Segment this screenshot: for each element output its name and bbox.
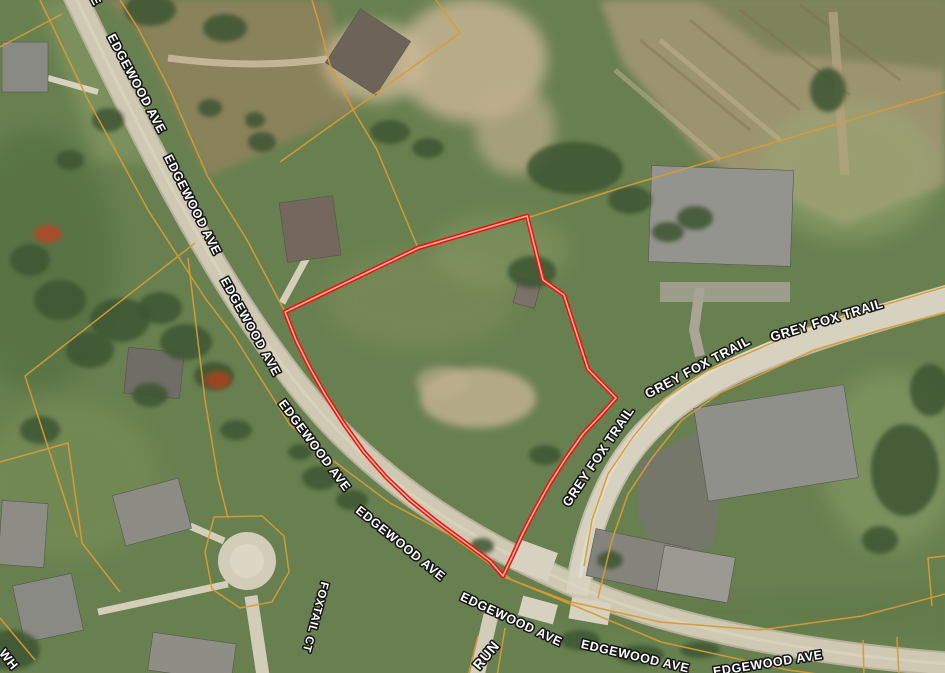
field-patch [416, 366, 468, 398]
front-walk [660, 282, 790, 302]
tree [412, 138, 444, 158]
tree [132, 383, 168, 407]
tree [597, 551, 623, 569]
map-viewport[interactable]: EDGEWOOD AVEEDGEWOOD AVEEDGEWOOD AVEEDGE… [0, 0, 945, 673]
tree [862, 526, 898, 554]
house [279, 196, 341, 263]
tree [34, 280, 86, 320]
tree [160, 324, 212, 360]
house [648, 166, 793, 267]
tree [198, 99, 222, 117]
tree [810, 68, 846, 112]
tree [527, 142, 623, 194]
house [0, 500, 48, 567]
map-canvas[interactable]: EDGEWOOD AVEEDGEWOOD AVEEDGEWOOD AVEEDGE… [0, 0, 945, 673]
house [2, 42, 48, 92]
tree [220, 420, 252, 440]
autumn-tree [205, 371, 231, 389]
tree [10, 244, 50, 276]
tree [529, 445, 561, 465]
parcel-boundary-line [863, 640, 864, 673]
tree [370, 120, 410, 144]
autumn-tree [34, 225, 62, 243]
tree [248, 132, 276, 152]
tree [203, 14, 247, 42]
tree [92, 108, 124, 132]
tree [56, 150, 84, 170]
tree [871, 424, 939, 516]
tree [652, 222, 684, 242]
tree [677, 206, 713, 230]
tree [245, 112, 265, 128]
culdesac-center [230, 544, 264, 578]
